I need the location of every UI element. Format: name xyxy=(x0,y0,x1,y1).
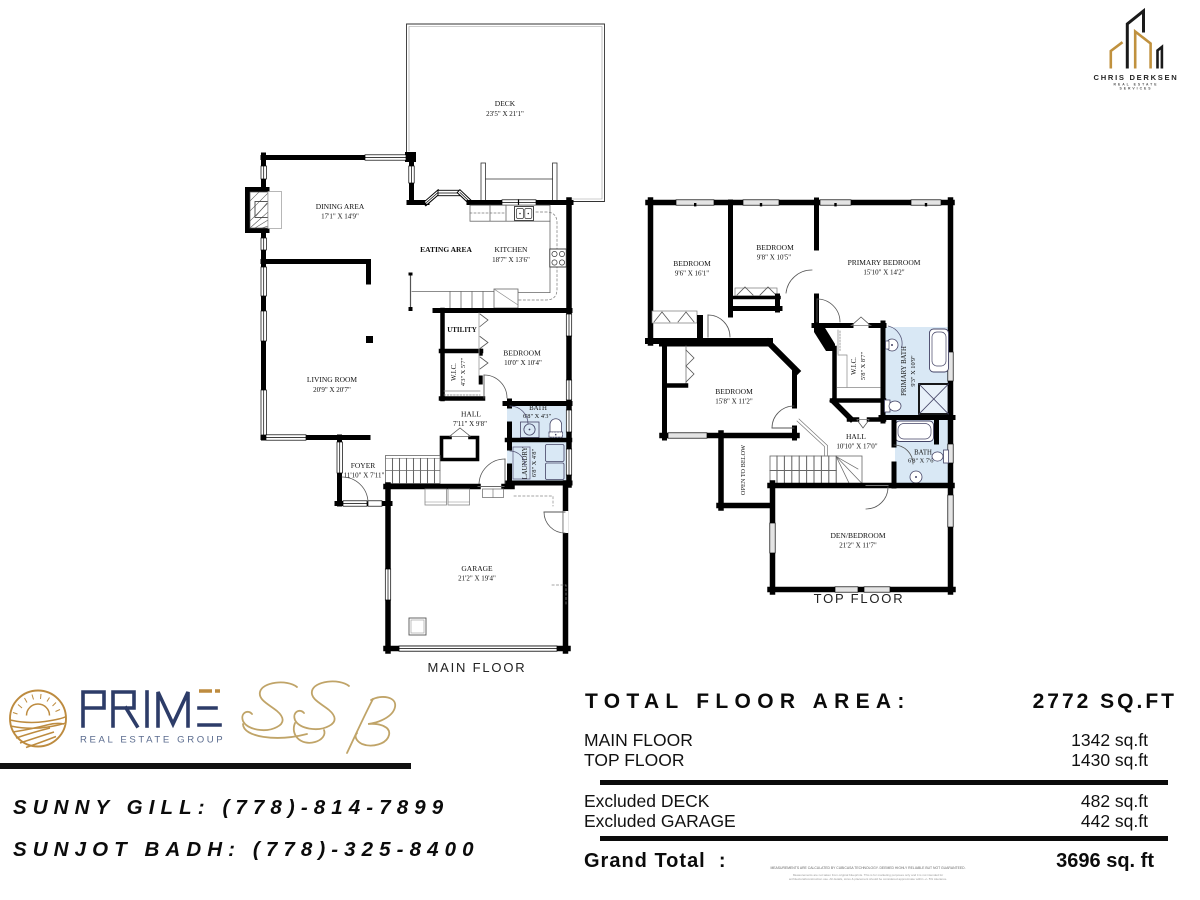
svg-text:BEDROOM: BEDROOM xyxy=(715,387,753,396)
svg-text:6'8" X 4'8": 6'8" X 4'8" xyxy=(531,449,538,478)
svg-text:DECK: DECK xyxy=(495,99,516,108)
svg-text:20'9" X 20'7": 20'9" X 20'7" xyxy=(313,386,351,394)
svg-text:SERVICES: SERVICES xyxy=(1119,87,1152,91)
svg-text:W.I.C.: W.I.C. xyxy=(851,357,858,375)
svg-text:4'3" X 5'7": 4'3" X 5'7" xyxy=(460,358,467,387)
svg-text:11'10" X 7'11": 11'10" X 7'11" xyxy=(344,472,385,480)
svg-text:DEN/BEDROOM: DEN/BEDROOM xyxy=(830,531,885,540)
svg-text:7'11" X 9'8": 7'11" X 9'8" xyxy=(453,420,487,428)
svg-text:6'8" X 4'3": 6'8" X 4'3" xyxy=(523,413,552,420)
svg-text:HALL: HALL xyxy=(461,410,481,419)
svg-text:FOYER: FOYER xyxy=(351,461,376,470)
svg-text:OPEN TO BELOW: OPEN TO BELOW xyxy=(740,445,747,495)
svg-text:9'6" X 16'1": 9'6" X 16'1" xyxy=(675,270,709,278)
svg-text:BEDROOM: BEDROOM xyxy=(503,349,541,358)
svg-text:HALL: HALL xyxy=(846,432,866,441)
svg-text:BATH: BATH xyxy=(914,450,932,457)
svg-text:EATING AREA: EATING AREA xyxy=(420,245,472,254)
svg-text:LAUNDRY: LAUNDRY xyxy=(522,446,529,479)
svg-text:TOP FLOOR: TOP FLOOR xyxy=(814,591,905,606)
svg-text:17'1" X 14'9": 17'1" X 14'9" xyxy=(321,213,359,221)
svg-text:W.I.C.: W.I.C. xyxy=(451,363,458,381)
svg-text:15'10" X 14'2": 15'10" X 14'2" xyxy=(863,269,904,277)
svg-text:PRIMARY BATH: PRIMARY BATH xyxy=(901,346,908,396)
svg-text:23'5" X 21'1": 23'5" X 21'1" xyxy=(486,110,524,118)
svg-text:REAL ESTATE GROUP: REAL ESTATE GROUP xyxy=(80,735,225,746)
svg-text:18'7" X 13'6": 18'7" X 13'6" xyxy=(492,256,530,264)
svg-text:9'8" X 10'5": 9'8" X 10'5" xyxy=(757,254,791,262)
svg-text:21'2" X 11'7": 21'2" X 11'7" xyxy=(839,542,877,550)
svg-text:LIVING ROOM: LIVING ROOM xyxy=(307,375,358,384)
svg-text:21'2" X 19'4": 21'2" X 19'4" xyxy=(458,575,496,583)
svg-text:KITCHEN: KITCHEN xyxy=(495,245,528,254)
svg-text:5'8" X 8'7": 5'8" X 8'7" xyxy=(860,352,867,381)
svg-text:BATH: BATH xyxy=(529,405,547,412)
svg-text:MAIN FLOOR: MAIN FLOOR xyxy=(428,660,527,675)
svg-text:10'10" X 17'0": 10'10" X 17'0" xyxy=(836,443,877,451)
svg-text:CHRIS DERKSEN: CHRIS DERKSEN xyxy=(1094,73,1179,82)
svg-text:GARAGE: GARAGE xyxy=(461,564,493,573)
svg-text:15'8" X 11'2": 15'8" X 11'2" xyxy=(715,398,753,406)
svg-text:BEDROOM: BEDROOM xyxy=(673,259,711,268)
svg-text:DINING AREA: DINING AREA xyxy=(316,202,365,211)
svg-text:PRIMARY BEDROOM: PRIMARY BEDROOM xyxy=(848,258,921,267)
svg-text:BEDROOM: BEDROOM xyxy=(756,243,794,252)
svg-text:UTILITY: UTILITY xyxy=(447,326,477,334)
svg-text:10'0" X 10'4": 10'0" X 10'4" xyxy=(504,359,542,367)
svg-text:9'3" X 10'9": 9'3" X 10'9" xyxy=(910,355,917,387)
